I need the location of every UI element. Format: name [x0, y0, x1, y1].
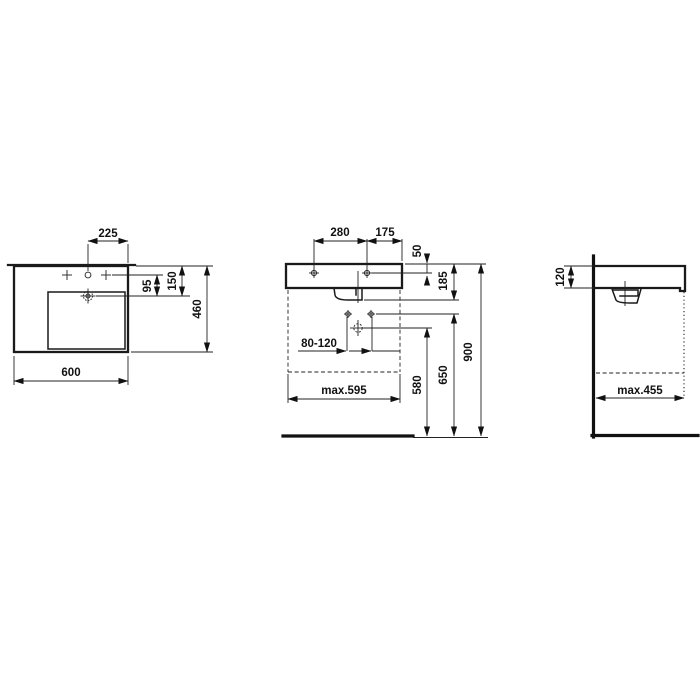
dim-clearance-depth: max.455 [596, 385, 684, 398]
fixing-hole-left [309, 268, 319, 278]
dim-label-225: 225 [98, 228, 118, 240]
tap-hole-option-left [62, 270, 72, 280]
dim-label-120: 120 [555, 267, 567, 286]
dim-valve-height: 650 [438, 314, 454, 436]
dim-label-460: 460 [192, 299, 204, 318]
dim-label-900: 900 [463, 342, 475, 361]
dim-clearance-width: max.595 [288, 374, 400, 403]
dim-label-150: 150 [167, 271, 179, 290]
dim-label-280: 280 [330, 227, 349, 239]
dim-label-175: 175 [375, 227, 395, 239]
bowl-outline [48, 292, 125, 349]
dim-label-600: 600 [61, 367, 80, 379]
front-view: 280 175 50 185 80-120 [283, 227, 488, 438]
dim-drain-height: 580 [412, 328, 427, 436]
dim-top-to-siphon: 185 [438, 264, 454, 300]
dim-tap-to-drain: 95 [142, 275, 157, 296]
dim-label-95: 95 [142, 279, 154, 292]
dim-label-80-120: 80-120 [301, 338, 337, 350]
basin-outline-front [286, 264, 402, 288]
dim-drain-offset-range: 80-120 [298, 317, 400, 351]
dim-front-apron-height: 120 [555, 266, 593, 288]
washbasin-drawing: 225 95 150 460 600 [0, 0, 700, 700]
drain-connection-symbol [350, 320, 366, 336]
dim-label-650: 650 [438, 365, 450, 384]
clearance-box-front [288, 290, 400, 372]
tap-hole [85, 272, 91, 278]
dim-depth: 460 [192, 266, 207, 352]
supply-valve-right [367, 310, 375, 318]
dim-edge-to-drain: 150 [167, 266, 182, 296]
dim-label-max595: max.595 [321, 385, 367, 397]
basin-outline-side [594, 266, 685, 291]
dim-hole-spacing: 280 175 [314, 227, 402, 268]
dim-label-max455: max.455 [617, 385, 663, 397]
basin-outline-top [14, 266, 128, 352]
top-view: 225 95 150 460 600 [8, 228, 213, 385]
dim-label-580: 580 [412, 375, 424, 394]
dim-width: 600 [14, 356, 128, 385]
side-view: 120 max.455 [555, 256, 698, 437]
tap-hole-option-right [101, 270, 111, 280]
dim-rim-height: 900 [463, 264, 481, 436]
technical-drawing-canvas: 225 95 150 460 600 [0, 0, 700, 700]
supply-valve-left [344, 310, 352, 318]
siphon-side [612, 281, 641, 306]
dim-label-185: 185 [438, 271, 450, 291]
dim-label-50: 50 [412, 245, 424, 258]
fixing-hole-right [362, 268, 372, 278]
drain-symbol-top [81, 289, 96, 304]
